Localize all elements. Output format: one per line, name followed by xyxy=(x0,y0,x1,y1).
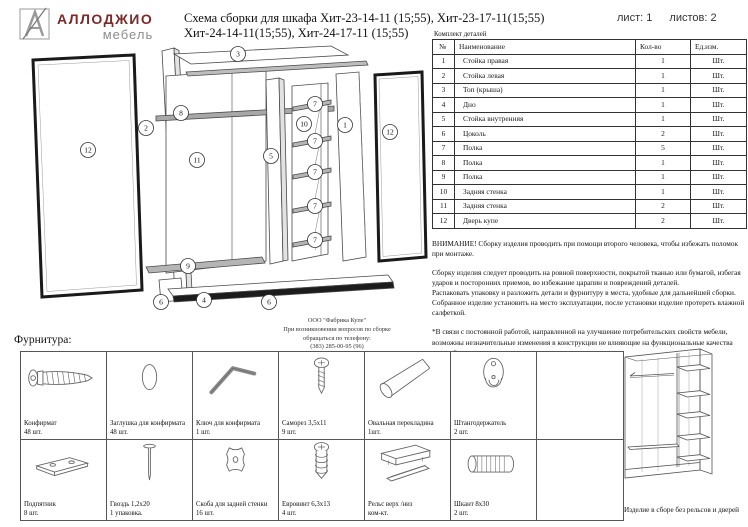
hardware-item-label: Шкант 8х302 шт. xyxy=(454,501,534,518)
part-unit: Шт. xyxy=(691,127,747,142)
hardware-item: Гвоздь 1,2х201 упаковка. xyxy=(107,440,193,520)
parts-table-caption: Комплект деталей xyxy=(434,31,486,38)
diagram-label-number: 10 xyxy=(300,120,308,129)
part-qty: 1 xyxy=(636,170,691,185)
part-number: 1 xyxy=(433,54,455,69)
hardware-item-label: Конфирмат48 шт. xyxy=(24,420,104,437)
part-number: 5 xyxy=(433,112,455,127)
part-qty: 1 xyxy=(636,54,691,69)
manufacturer-line2: При возникновении вопросов по сборке xyxy=(252,326,422,335)
left-door-panel xyxy=(33,55,142,297)
part-qty: 5 xyxy=(636,141,691,156)
hex-key-icon xyxy=(193,353,278,403)
exploded-assembly-diagram: 1228113510777771129646 xyxy=(16,42,430,336)
part-qty: 1 xyxy=(636,112,691,127)
rod-holder-icon xyxy=(451,353,536,403)
hardware-item: Саморез 3,5х119 шт. xyxy=(279,352,365,440)
part-qty: 1 xyxy=(636,83,691,98)
brand-name: АЛЛОДЖИО xyxy=(57,11,153,27)
hardware-item-label: Заглушка для конфирмата48 шт. xyxy=(110,420,190,437)
sheets-total: листов: 2 xyxy=(669,12,716,24)
part-row: 3Топ (крыша)1Шт. xyxy=(433,83,747,98)
manufacturer-name: ООО "Фабрика Купе" xyxy=(252,317,422,326)
part-number: 7 xyxy=(433,141,455,156)
sliding-rail-icon xyxy=(365,441,450,487)
hardware-item: Евровинт 6,3х134 шт. xyxy=(279,440,365,520)
part-row: 7Полка5Шт. xyxy=(433,141,747,156)
part-row: 9Полка1Шт. xyxy=(433,170,747,185)
parts-table: №НаименованиеКол-воЕд.изм. 1Стойка права… xyxy=(432,39,747,229)
part-name: Полка xyxy=(455,141,636,156)
part-row: 5Стойка внутренняя1Шт. xyxy=(433,112,747,127)
brand-block: АЛЛОДЖИО мебель xyxy=(57,11,153,42)
part-qty: 1 xyxy=(636,69,691,84)
diagram-label-number: 7 xyxy=(313,137,317,146)
hardware-section-title: Фурнитура: xyxy=(14,334,72,346)
hardware-empty-cell xyxy=(537,440,623,520)
part-row: 8Полка1Шт. xyxy=(433,156,747,171)
diagram-label-number: 12 xyxy=(386,128,394,137)
title-line-2: Хит-24-14-11(15;55), Хит-24-17-11 (15;55… xyxy=(184,26,564,41)
parts-column-header: Наименование xyxy=(455,40,636,55)
part-qty: 2 xyxy=(636,214,691,229)
part-number: 4 xyxy=(433,98,455,113)
part-row: 10Задняя стенка1Шт. xyxy=(433,185,747,200)
part-number: 8 xyxy=(433,156,455,171)
wood-dowel-icon xyxy=(451,441,536,487)
part-number: 10 xyxy=(433,185,455,200)
hardware-item-label: Подпятник8 шт. xyxy=(24,501,104,518)
sheet-number: лист: 1 xyxy=(617,12,652,24)
note-line-2: Распаковать упаковку и разложить детали … xyxy=(432,288,747,298)
confirmat-screw-icon xyxy=(21,353,106,403)
part-unit: Шт. xyxy=(691,83,747,98)
part-qty: 1 xyxy=(636,98,691,113)
part-unit: Шт. xyxy=(691,199,747,214)
diagram-label-number: 6 xyxy=(159,298,163,307)
diagram-label-number: 6 xyxy=(267,298,271,307)
part-number: 6 xyxy=(433,127,455,142)
part-number: 12 xyxy=(433,214,455,229)
diagram-label-number: 7 xyxy=(313,202,317,211)
hardware-item: Штангодержатель2 шт. xyxy=(451,352,537,440)
part-unit: Шт. xyxy=(691,185,747,200)
parts-column-header: № xyxy=(433,40,455,55)
diagram-label-number: 9 xyxy=(186,262,190,271)
part-name: Задняя стенка xyxy=(455,185,636,200)
part-name: Дверь купе xyxy=(455,214,636,229)
diagram-label-number: 5 xyxy=(269,152,273,161)
diagram-label-number: 4 xyxy=(202,296,206,305)
hardware-item-label: Скоба для задней стенки16 шт. xyxy=(196,501,276,518)
assembled-view-caption: Изделие в сборе без рельсов и дверей xyxy=(615,506,748,514)
part-qty: 2 xyxy=(636,199,691,214)
part-name: Цоколь xyxy=(455,127,636,142)
hardware-item-label: Ключ для конфирмата1 шт. xyxy=(196,420,276,437)
part-unit: Шт. xyxy=(691,98,747,113)
part-qty: 2 xyxy=(636,127,691,142)
part-number: 11 xyxy=(433,199,455,214)
part-row: 6Цоколь2Шт. xyxy=(433,127,747,142)
part-number: 3 xyxy=(433,83,455,98)
hardware-item: Ключ для конфирмата1 шт. xyxy=(193,352,279,440)
title-line-1: Схема сборки для шкафа Хит-23-14-11 (15;… xyxy=(184,11,564,26)
back-panel-bracket-icon xyxy=(193,441,278,487)
part-name: Стойка левая xyxy=(455,69,636,84)
hardware-empty-cell xyxy=(537,352,623,440)
part-unit: Шт. xyxy=(691,54,747,69)
parts-column-header: Кол-во xyxy=(636,40,691,55)
part-unit: Шт. xyxy=(691,141,747,156)
hardware-item: Рельс верх /низком-кт. xyxy=(365,440,451,520)
part-row: 4Дно1Шт. xyxy=(433,98,747,113)
part-qty: 1 xyxy=(636,185,691,200)
warning-text: ВНИМАНИЕ! Сборку изделия проводить при п… xyxy=(432,239,747,259)
hardware-grid: Конфирмат48 шт.Заглушка для конфирмата48… xyxy=(20,351,624,521)
diagram-label-number: 8 xyxy=(179,109,183,118)
part-row: 2Стойка левая1Шт. xyxy=(433,69,747,84)
hardware-item: Заглушка для конфирмата48 шт. xyxy=(107,352,193,440)
diagram-label-number: 7 xyxy=(313,236,317,245)
diagram-label-number: 7 xyxy=(313,168,317,177)
part-row: 1Стойка правая1Шт. xyxy=(433,54,747,69)
nail-icon xyxy=(107,441,192,487)
part-name: Полка xyxy=(455,170,636,185)
oval-cap-icon xyxy=(107,353,192,403)
hardware-item: Овальная перекладина1шт. xyxy=(365,352,451,440)
part-name: Полка xyxy=(455,156,636,171)
oval-rod-icon xyxy=(365,353,450,403)
diagram-label-number: 3 xyxy=(236,50,240,59)
hardware-item-label: Евровинт 6,3х134 шт. xyxy=(282,501,362,518)
page-title: Схема сборки для шкафа Хит-23-14-11 (15;… xyxy=(184,11,564,40)
diagram-label-number: 7 xyxy=(313,100,317,109)
hardware-item-label: Гвоздь 1,2х201 упаковка. xyxy=(110,501,190,518)
part-unit: Шт. xyxy=(691,170,747,185)
brand-subtitle: мебель xyxy=(57,27,153,42)
note-line-3: Собранное изделие установить на место эк… xyxy=(432,298,747,318)
part-number: 9 xyxy=(433,170,455,185)
diagram-label-number: 2 xyxy=(144,124,148,133)
manufacturer-line3: обращаться по телефону: xyxy=(252,335,422,344)
plinth-line xyxy=(625,463,700,470)
back-panel-large xyxy=(166,69,266,273)
left-shelf-line xyxy=(628,444,679,450)
self-tapping-screw-icon xyxy=(279,353,364,403)
foot-pad-icon xyxy=(21,441,106,487)
hardware-item-label: Рельс верх /низком-кт. xyxy=(368,501,448,518)
hardware-item-label: Овальная перекладина1шт. xyxy=(368,420,448,437)
diagram-label-number: 12 xyxy=(84,146,92,155)
part-unit: Шт. xyxy=(691,214,747,229)
part-number: 2 xyxy=(433,69,455,84)
manufacturer-note: ООО "Фабрика Купе" При возникновении воп… xyxy=(252,317,422,352)
top-panel xyxy=(174,46,348,64)
right-side-panel xyxy=(336,72,366,261)
right-shelves xyxy=(677,365,710,461)
part-name: Задняя стенка xyxy=(455,199,636,214)
hanging-rail-line xyxy=(630,373,674,378)
part-name: Стойка правая xyxy=(455,54,636,69)
instructions-text: Сборку изделия следует проводить на ровн… xyxy=(432,268,747,318)
hardware-item: Конфирмат48 шт. xyxy=(21,352,107,440)
diagram-label-number: 1 xyxy=(343,121,347,130)
hardware-item-label: Штангодержатель2 шт. xyxy=(454,420,534,437)
diagram-label-number: 11 xyxy=(193,156,200,165)
parts-column-header: Ед.изм. xyxy=(691,40,747,55)
brand-logo xyxy=(19,6,51,42)
part-unit: Шт. xyxy=(691,69,747,84)
part-name: Дно xyxy=(455,98,636,113)
part-unit: Шт. xyxy=(691,156,747,171)
part-qty: 1 xyxy=(636,156,691,171)
part-unit: Шт. xyxy=(691,112,747,127)
note-line-1: Сборку изделия следует проводить на ровн… xyxy=(432,268,747,288)
hardware-item: Шкант 8х302 шт. xyxy=(451,440,537,520)
assembled-wardrobe-drawing xyxy=(620,346,746,504)
hardware-item: Скоба для задней стенки16 шт. xyxy=(193,440,279,520)
euro-screw-icon xyxy=(279,441,364,487)
parts-table-header: №НаименованиеКол-воЕд.изм. xyxy=(433,40,747,55)
part-row: 12Дверь купе2Шт. xyxy=(433,214,747,229)
part-row: 11Задняя стенка2Шт. xyxy=(433,199,747,214)
hardware-item: Подпятник8 шт. xyxy=(21,440,107,520)
part-name: Стойка внутренняя xyxy=(455,112,636,127)
sheet-info: лист: 1 листов: 2 xyxy=(617,12,717,24)
hardware-item-label: Саморез 3,5х119 шт. xyxy=(282,420,362,437)
part-name: Топ (крыша) xyxy=(455,83,636,98)
